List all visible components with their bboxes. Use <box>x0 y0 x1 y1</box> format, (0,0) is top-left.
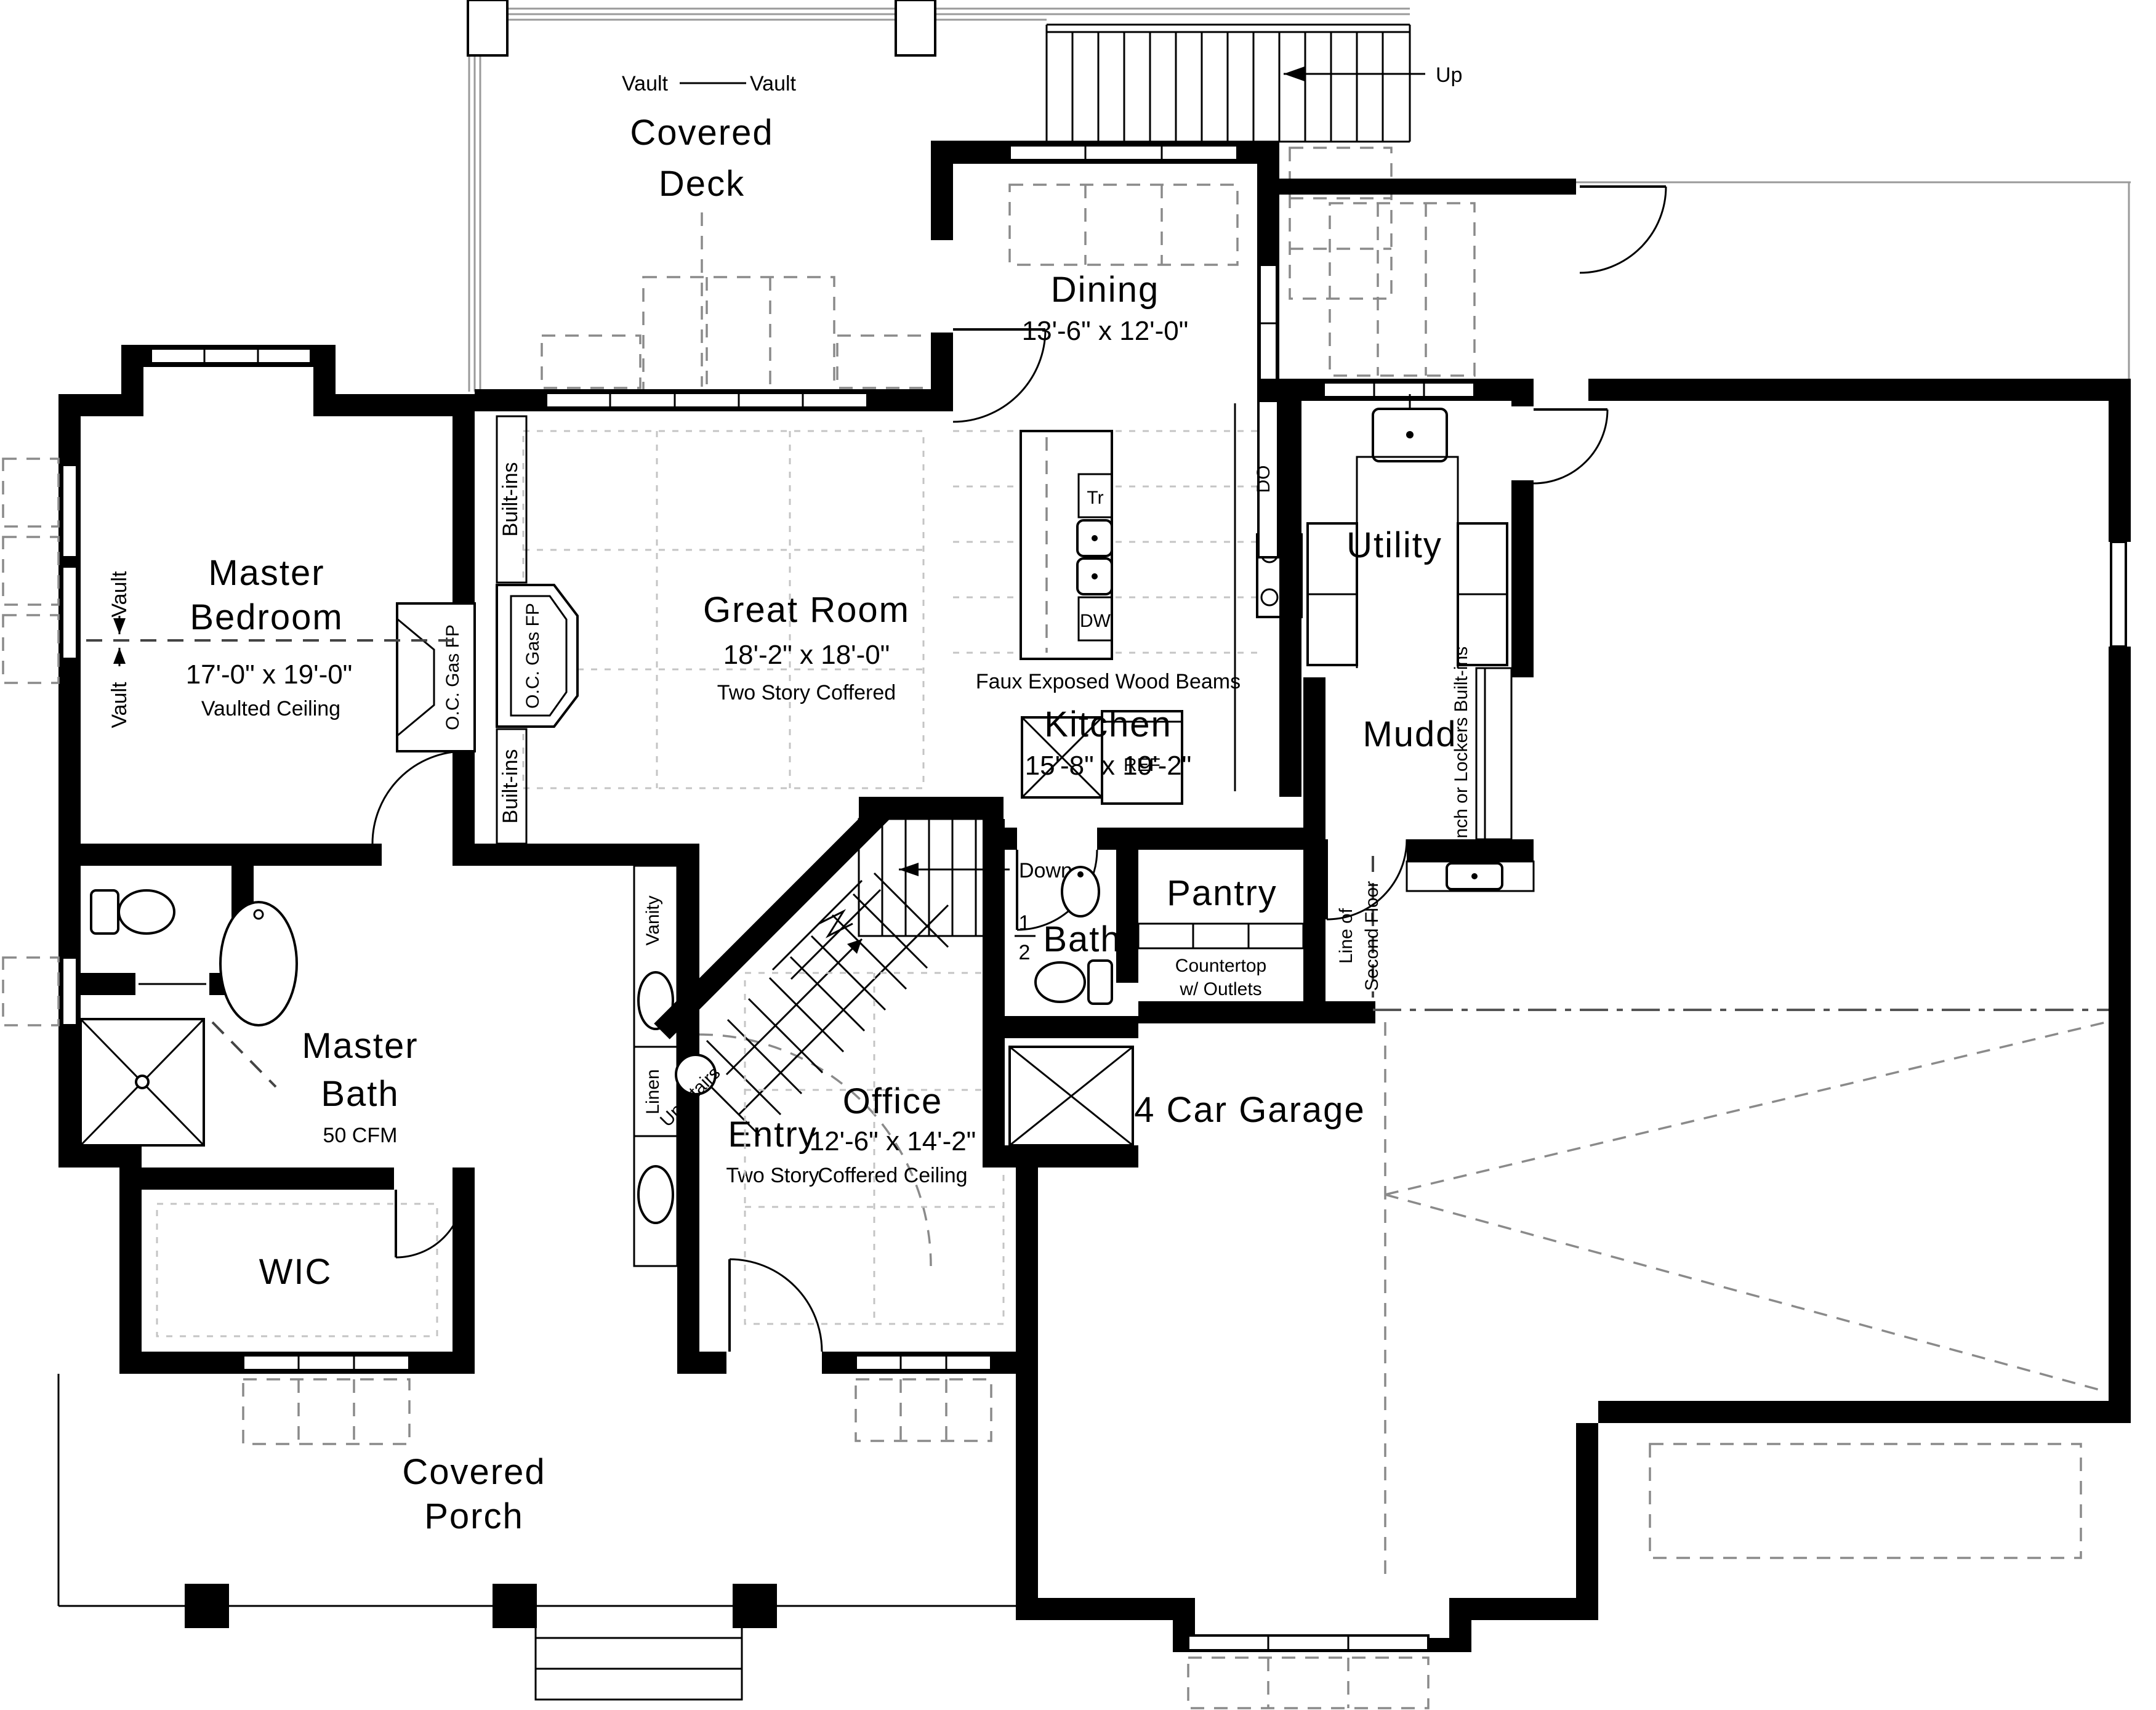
covered-deck-label-1: Covered <box>630 113 773 153</box>
vanity-label: Vanity <box>643 895 663 945</box>
great-room-fireplace-label: O.C. Gas FP <box>523 603 543 709</box>
porch-label-2: Porch <box>424 1496 524 1536</box>
built-ins-lower: Built-ins <box>499 749 522 824</box>
master-bedroom-note: Vaulted Ceiling <box>201 697 340 720</box>
floor-plan-canvas: Up Vault Vault Covered Deck Dining 13'-6… <box>0 0 2156 1710</box>
floor-plan-page: Up Vault Vault Covered Deck Dining 13'-6… <box>0 0 2156 1710</box>
wic-label: WIC <box>259 1252 332 1292</box>
porch-label-1: Covered <box>402 1452 545 1492</box>
master-bedroom-label-2: Bedroom <box>190 597 343 637</box>
master-bedroom-dims: 17'-0" x 19'-0" <box>186 659 353 690</box>
porch-post <box>493 1584 537 1628</box>
utility-label: Utility <box>1346 525 1442 565</box>
dining-dims: 13'-6" x 12'-0" <box>1022 316 1189 346</box>
deck-pillar <box>468 0 507 55</box>
mudd-label: Mudd <box>1362 714 1457 754</box>
washer-dryer-right <box>1458 523 1507 665</box>
master-bath-label-2: Bath <box>321 1074 399 1114</box>
dining-label: Dining <box>1051 270 1159 310</box>
mudd-sink-counter <box>1407 861 1534 891</box>
built-ins-upper: Built-ins <box>499 462 522 537</box>
half-bath-numerator: 1 <box>1019 911 1031 935</box>
trash-label: Tr <box>1087 488 1103 508</box>
half-bath-sink <box>1062 867 1099 916</box>
master-bedroom-label-1: Master <box>208 553 324 593</box>
half-bath-toilet <box>1036 961 1112 1004</box>
bench-label: Bench or Lockers Built-ins <box>1451 647 1471 861</box>
toilet <box>91 890 174 934</box>
fireplace-wall: Built-ins Built-ins O.C. Gas FP O.C. Gas… <box>397 394 577 866</box>
garage-label: 4 Car Garage <box>1134 1090 1365 1130</box>
covered-porch: Covered Porch <box>58 1374 1016 1700</box>
faux-beams-label: Faux Exposed Wood Beams <box>976 670 1241 693</box>
second-floor-label-2: Second Floor <box>1362 881 1382 991</box>
office-label: Office <box>843 1081 943 1121</box>
great-room-note: Two Story Coffered <box>717 681 896 704</box>
countertop-label-1: Countertop <box>1175 956 1266 976</box>
deck-pillar <box>896 0 935 55</box>
master-bath-label-1: Master <box>302 1026 418 1066</box>
second-floor-label-1: Line of <box>1336 908 1356 964</box>
do-label: DO <box>1253 466 1274 493</box>
linen-closet <box>1010 1047 1133 1145</box>
master-bath-door <box>372 751 465 844</box>
deck-vault-right: Vault <box>750 72 797 95</box>
kitchen-label: Kitchen <box>1044 704 1172 744</box>
wic: WIC <box>119 1168 475 1444</box>
garage: 4 Car Garage <box>1016 179 2131 1708</box>
great-room-fireplace: O.C. Gas FP <box>497 585 577 727</box>
kitchen-island: Tr DW <box>1021 431 1112 659</box>
kitchen: Tr DW REF <box>883 403 1301 819</box>
office-note: Coffered Ceiling <box>818 1164 967 1187</box>
covered-deck-label-2: Deck <box>659 164 745 204</box>
garage-entry-door <box>1534 409 1607 483</box>
half-bath-denominator: 2 <box>1019 941 1031 964</box>
covered-deck: Up Vault Vault Covered Deck <box>468 0 1462 392</box>
dishwasher-label: DW <box>1080 611 1111 631</box>
double-oven: DO <box>1253 401 1278 557</box>
deck-vault-left: Vault <box>622 72 669 95</box>
bathtub <box>220 902 297 1025</box>
linen-label: Linen <box>643 1069 663 1114</box>
kitchen-dims: 15'-8" x 19'-2" <box>1025 751 1192 781</box>
garage-truss-dashes <box>1385 1022 2106 1576</box>
master-bath: Master Bath 50 CFM Vanity Linen <box>58 866 699 1374</box>
great-room-dims: 18'-2" x 18'-0" <box>723 640 890 670</box>
master-fireplace: O.C. Gas FP <box>397 603 475 751</box>
porch-post <box>185 1584 229 1628</box>
bench-lockers: Bench or Lockers Built-ins <box>1451 647 1511 861</box>
half-bath-label: Bath <box>1043 919 1121 959</box>
porch-steps <box>536 1606 742 1700</box>
pantry-label: Pantry <box>1167 873 1277 913</box>
entry-label: Entry <box>728 1115 817 1155</box>
shower <box>81 1019 276 1145</box>
countertop-label-2: w/ Outlets <box>1179 979 1261 999</box>
office-dims: 12'-6" x 14'-2" <box>810 1126 976 1156</box>
master-bath-note: 50 CFM <box>323 1124 398 1147</box>
master-vault-upper: Vault <box>108 571 131 618</box>
entry-note: Two Story <box>726 1164 819 1187</box>
deck-stairs <box>931 25 1410 142</box>
porch-post <box>733 1584 777 1628</box>
great-room-label: Great Room <box>703 590 910 630</box>
stoop-door <box>1580 187 1666 273</box>
front-door <box>730 1259 822 1352</box>
utility-sink <box>1373 394 1447 461</box>
deck-up-label: Up <box>1436 63 1462 87</box>
master-vault-lower: Vault <box>108 682 131 728</box>
mudd-room: Mudd Bench or Lockers Built-ins <box>1303 647 1534 919</box>
